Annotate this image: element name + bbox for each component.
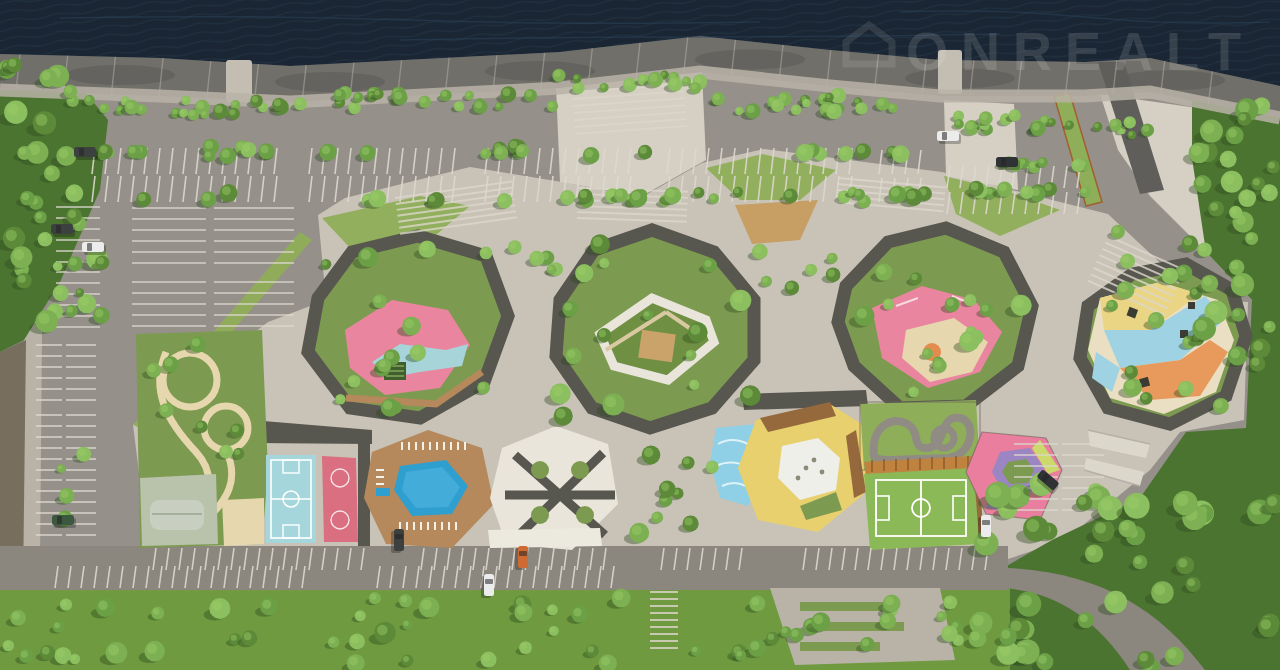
football-field xyxy=(864,456,982,550)
watermark-text: ONREALT xyxy=(906,21,1254,81)
sand-corner xyxy=(222,498,264,546)
pink-court xyxy=(322,456,358,542)
south-plaza-planters xyxy=(770,588,955,665)
white-wing-roof xyxy=(488,528,602,548)
watermark: ONREALT xyxy=(846,21,1254,81)
kiddie-pool xyxy=(376,488,390,496)
wood-terrace xyxy=(638,330,676,362)
park-loops-zone xyxy=(136,330,268,548)
halfpipe xyxy=(150,500,204,530)
aerial-render: ONREALT xyxy=(0,0,1280,670)
courtyard-block-center xyxy=(556,230,754,428)
basketball-court xyxy=(266,455,316,543)
masterplan-svg: ONREALT xyxy=(0,0,1280,670)
